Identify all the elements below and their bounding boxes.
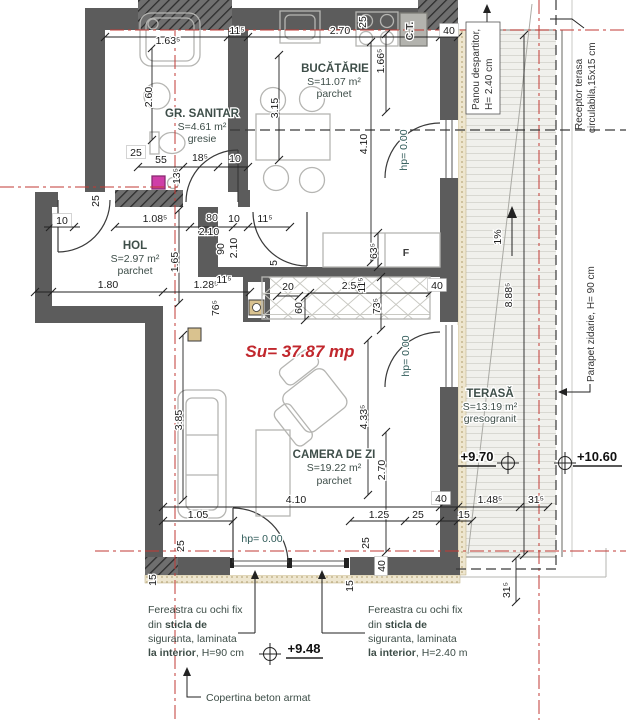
dim-label: 25: [360, 537, 372, 549]
dim-label: 11⁵: [229, 25, 244, 37]
dim-label: 40: [443, 25, 455, 37]
equipment-label: F: [403, 247, 410, 259]
room-floor: parchet: [316, 475, 351, 487]
floor-plan-drawing: GR. SANITAR S=4.61 m² gresie BUCĂTĂRIE S…: [0, 0, 626, 720]
dim-label: 15: [458, 509, 470, 521]
room-name-gr-sanitar: GR. SANITAR: [165, 108, 240, 120]
dim-label: 1.80: [98, 279, 119, 291]
window-note-left-l3: siguranta, laminata: [148, 633, 237, 645]
receptor-note-line2: circulabila,15x15 cm: [587, 42, 598, 133]
door-arc-living-terrace: [385, 332, 440, 387]
dim-label: 4.33⁵: [358, 405, 370, 430]
dim-label: 80: [206, 212, 218, 224]
wall-kitchen-living: [198, 267, 455, 277]
dim-label: 90: [215, 243, 227, 255]
dim-label: 40: [435, 493, 447, 505]
dim-label: 15: [344, 580, 356, 592]
dim-label: 18⁵: [192, 152, 208, 164]
room-name-bucatarie: BUCĂTĂRIE: [301, 62, 369, 75]
svg-text:Fereastra cu ochi fix: Fereastra cu ochi fix: [148, 604, 243, 616]
window-note-right-l2a: din: [368, 619, 385, 631]
equipment-label: C.T.: [404, 22, 416, 41]
elevation-canopy: +9.48: [288, 641, 321, 656]
window-note-left-l1: Fereastra cu ochi fix: [148, 604, 243, 616]
panou-note-line2: H= 2.40 cm: [484, 59, 495, 110]
dim-label: 1%: [492, 229, 504, 244]
dim-label: 55: [155, 154, 167, 166]
dim-label: 31⁵: [501, 582, 513, 598]
window-note-right-l4a: la interior: [368, 647, 416, 659]
room-floor: gresogranit: [464, 413, 517, 425]
dim-label: 3.15: [269, 98, 281, 119]
dim-label: 1.66⁵: [375, 49, 387, 74]
wall-section-hatch: [115, 190, 183, 207]
window-note-left-l4a: la interior: [148, 647, 196, 659]
window-note-right-l3: siguranta, laminata: [368, 633, 457, 645]
copertina-note: Copertina beton armat: [206, 692, 311, 704]
dim-label: 40: [431, 280, 443, 292]
room-name-camera-de-zi: CAMERA DE ZI: [293, 449, 376, 461]
dim-label: 63⁵: [368, 243, 380, 259]
dim-label: 11⁵: [216, 274, 231, 286]
wall-section-hatch: [145, 557, 178, 575]
kitchen-counter: [323, 233, 440, 267]
wall-right: [440, 30, 458, 120]
room-area: S=11.07 m²: [307, 76, 361, 88]
chair: [264, 166, 289, 191]
toilet-bowl: [159, 133, 185, 154]
dim-label: 10: [228, 213, 240, 225]
elevation-terrace: +9.70: [461, 449, 494, 464]
dim-label: 15: [147, 574, 159, 586]
panou-arrow-icon: [483, 4, 491, 13]
dim-label: 76⁵: [210, 300, 222, 316]
level-label: hp= 0.00: [398, 129, 410, 170]
svg-text:din sticla de: din sticla de: [368, 619, 427, 631]
dim-label: 4.10: [358, 134, 370, 155]
dim-label: 25: [357, 16, 369, 28]
dim-label: 60: [293, 302, 305, 314]
room-area: S=4.61 m²: [178, 121, 227, 133]
couch: [178, 390, 226, 518]
dim-label: 13⁵: [171, 168, 183, 184]
room-floor: gresie: [188, 133, 217, 145]
sofa: [253, 347, 354, 448]
svg-text:din sticla de: din sticla de: [148, 619, 207, 631]
room-floor: parchet: [316, 88, 351, 100]
room-name-hol: HOL: [123, 240, 147, 252]
window-note-right-l2b: sticla de: [385, 619, 427, 631]
column-box: [188, 328, 201, 341]
shaft-pipe: [253, 304, 261, 312]
toilet-tank: [150, 132, 159, 154]
level-label: hp= 0.00: [241, 533, 282, 545]
dim-label: 5: [268, 260, 280, 266]
dim-label: 10: [229, 153, 241, 165]
elevation-parapet-top: +10.60: [577, 449, 617, 464]
room-area: S=2.97 m²: [111, 253, 160, 265]
svg-text:siguranta, laminata: siguranta, laminata: [148, 633, 237, 645]
svg-text:la interior, H=90 cm: la interior, H=90 cm: [148, 647, 244, 659]
dim-label: 1.65: [169, 252, 181, 273]
room-area: S=13.19 m²: [463, 401, 518, 413]
room-floor: parchet: [117, 265, 152, 277]
window-note-left-l2a: din: [148, 619, 165, 631]
parapet-note: Parapet zidarie, H= 90 cm: [586, 266, 597, 382]
dim-label: 10: [56, 215, 68, 227]
dim-label: 3.85: [173, 410, 185, 431]
dim-label: 25: [130, 147, 142, 159]
wall-hol-bottom: [35, 306, 163, 323]
wall-living-left: [145, 323, 163, 575]
dim-label: 1.25: [369, 509, 390, 521]
svg-text:Fereastra cu ochi fix: Fereastra cu ochi fix: [368, 604, 463, 616]
dim-label: 11⁵: [257, 213, 272, 225]
dim-label: 2.10: [228, 238, 240, 259]
level-label: hp= 0.00: [400, 335, 412, 376]
window-note-left-l4b: , H=90 cm: [196, 647, 244, 659]
window-note-right-l1: Fereastra cu ochi fix: [368, 604, 463, 616]
dim-label: 11⁵: [356, 277, 368, 292]
wall-section-hatch: [138, 0, 232, 30]
door-arc-kitchen-terrace: [385, 123, 440, 178]
dim-label: 40: [376, 560, 388, 572]
furniture: [140, 11, 440, 518]
kitchen-table: [256, 114, 330, 160]
dim-label: 1.63⁵: [156, 35, 181, 47]
dim-label: 73⁵: [371, 298, 383, 314]
dim-label: 2.70: [376, 460, 388, 481]
dim-label: 8.88⁵: [503, 283, 515, 308]
room-name-terasa: TERASĂ: [466, 387, 513, 400]
dim-label: 2.60: [143, 87, 155, 108]
dim-label: 1.28⁵: [194, 279, 219, 291]
dim-label: 2.70: [330, 25, 351, 37]
receptor-note-line1: Receptor terasa: [574, 58, 585, 130]
window-note-left-l2b: sticla de: [165, 619, 207, 631]
panou-note-line1: Panou despartitor,: [471, 29, 482, 110]
usable-area-label: Su= 37.87 mp: [245, 342, 354, 361]
dim-label: 25: [412, 509, 424, 521]
svg-text:la interior, H=2.40 m: la interior, H=2.40 m: [368, 647, 468, 659]
dim-label: 2.10: [199, 226, 220, 238]
wall-bath-left: [85, 30, 105, 192]
dim-label: 4.10: [286, 494, 307, 506]
dim-label: 31⁵: [528, 494, 544, 506]
dim-label: 1.48⁵: [478, 494, 503, 506]
dim-label: 25: [175, 540, 187, 552]
chair: [300, 168, 325, 193]
floor-plan-canvas: GR. SANITAR S=4.61 m² gresie BUCĂTĂRIE S…: [0, 0, 626, 720]
window-note-right-l4b: , H=2.40 m: [416, 647, 468, 659]
dim-label: 1.05: [188, 509, 209, 521]
dim-label: 25: [90, 195, 102, 207]
wall-right: [440, 387, 458, 575]
dim-label: 20: [282, 281, 294, 293]
svg-text:siguranta, laminata: siguranta, laminata: [368, 633, 457, 645]
room-area: S=19.22 m²: [307, 462, 362, 474]
copertina-arrow-icon: [183, 667, 191, 676]
dim-label: 1.08⁵: [143, 213, 168, 225]
wall-right: [440, 178, 458, 322]
wall-hol-left: [35, 192, 52, 323]
